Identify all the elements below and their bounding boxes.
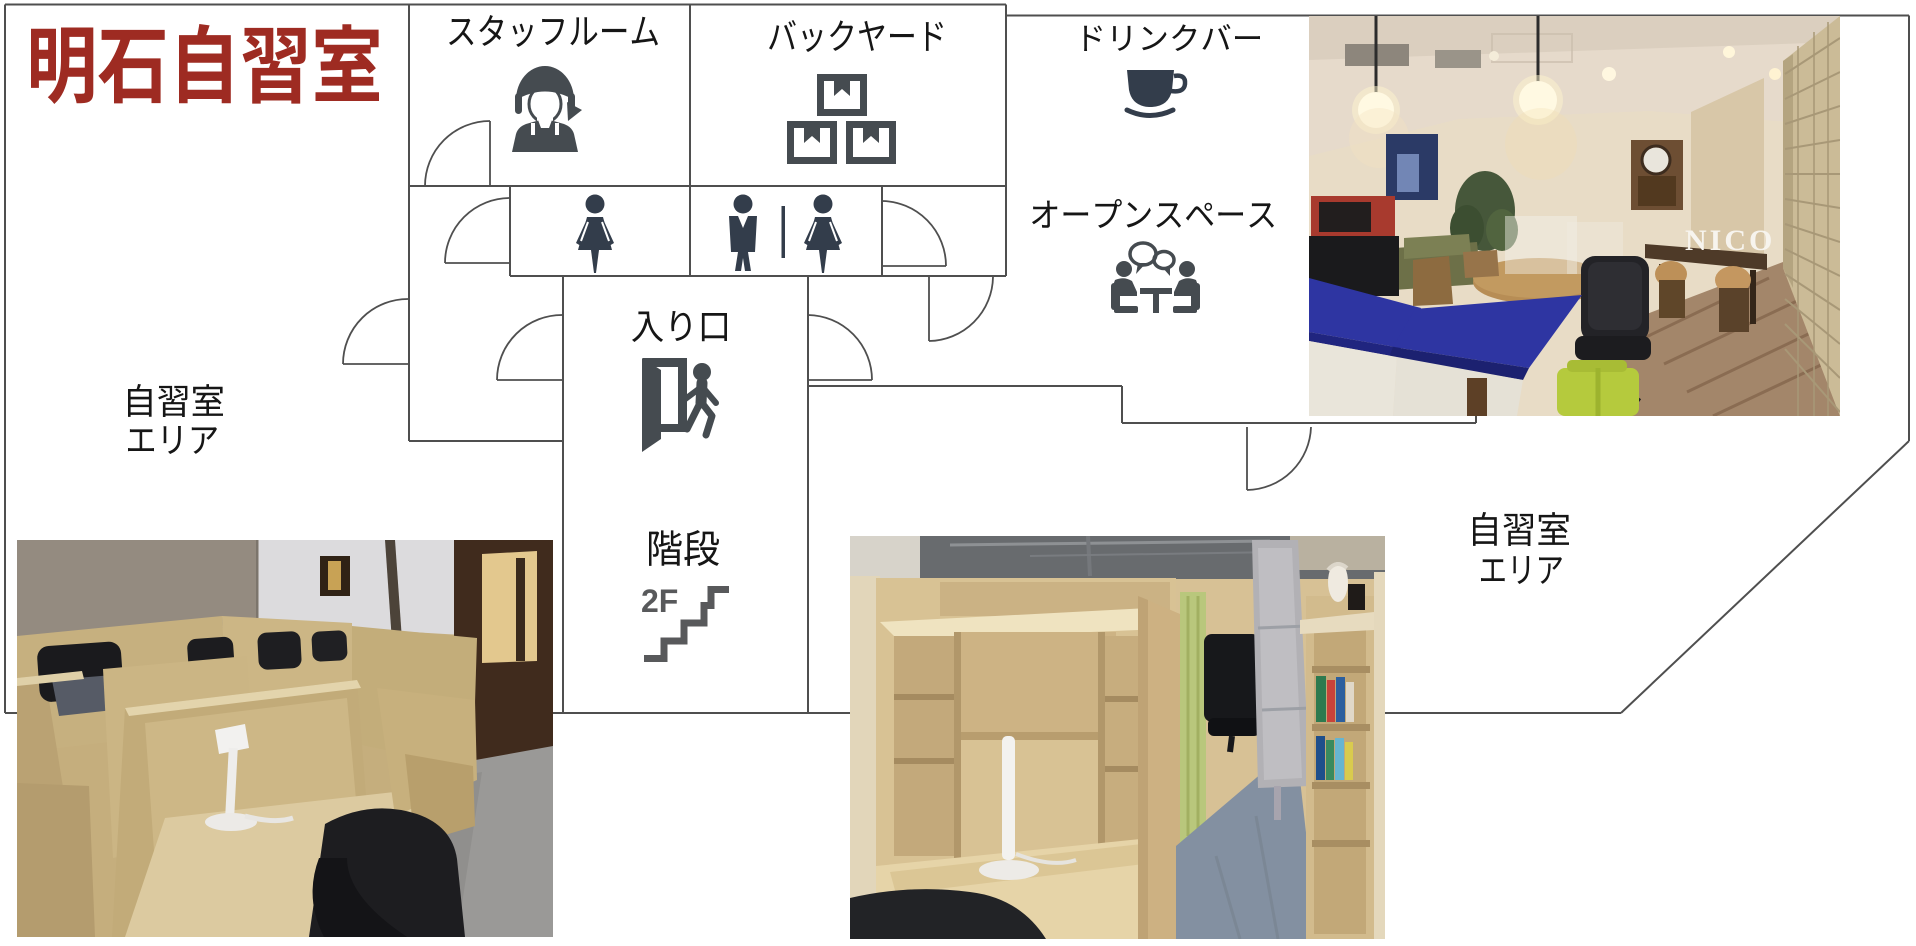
svg-text:NICO: NICO bbox=[1685, 224, 1775, 257]
svg-text:2F: 2F bbox=[641, 583, 678, 619]
